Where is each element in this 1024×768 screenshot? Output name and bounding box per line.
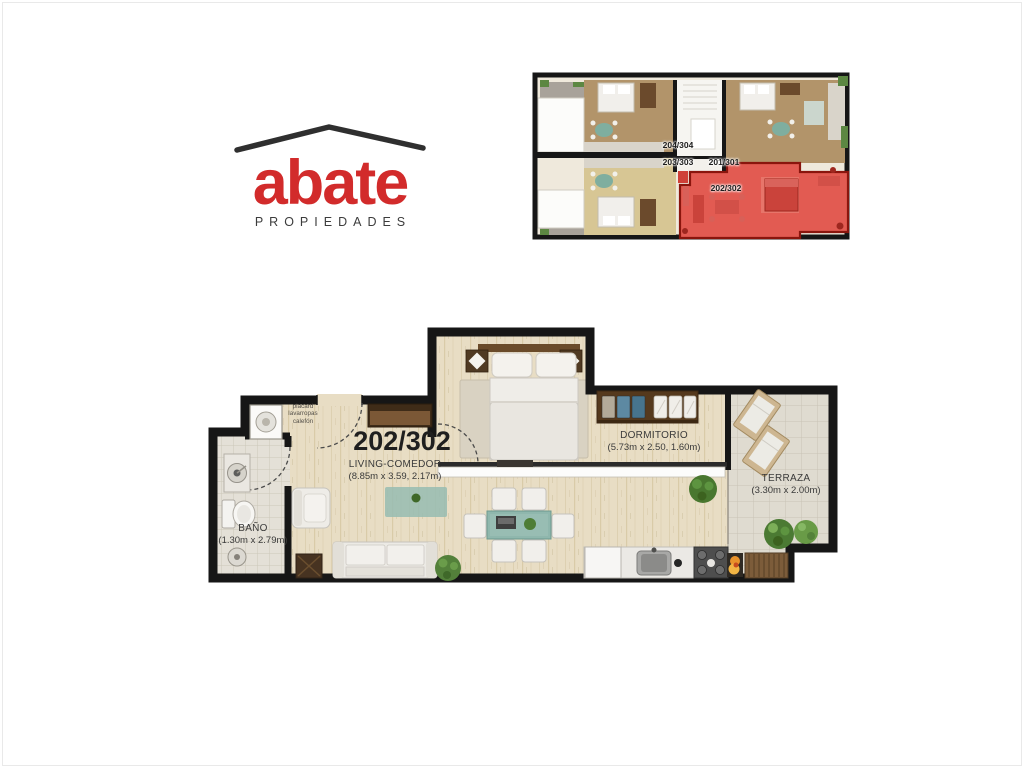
washer (250, 405, 282, 439)
overview-unit-label-202: 202/302 (702, 184, 750, 193)
highlighted-unit-region (680, 163, 848, 238)
room-label-living: LIVING-COMEDOR (8.85m x 3.59, 2.17m) (315, 458, 475, 483)
armchair (292, 488, 330, 528)
fridge (585, 547, 621, 578)
side-table (296, 554, 322, 578)
main-floorplan: 202/302 placard lavarropas calefón LIVIN… (210, 326, 840, 592)
overview-stairwell (676, 80, 724, 183)
brand-logo: abate PROPIEDADES (210, 116, 450, 251)
overview-unit-201 (724, 76, 848, 163)
overview-unit-label-203: 203/303 (654, 158, 702, 167)
plant-bedroom (689, 475, 717, 503)
plant-living (435, 555, 461, 581)
sofa (333, 542, 437, 578)
kitchen-sink (637, 548, 671, 576)
brand-tagline: PROPIEDADES (210, 215, 450, 229)
overview-plan: 204/304 203/303 201/301 202/302 (531, 71, 853, 245)
kitchen (584, 547, 728, 578)
bathroom-sink (228, 548, 246, 566)
wardrobe (597, 391, 698, 423)
brand-name: abate (210, 152, 450, 215)
floorplan-drawing (210, 326, 840, 592)
elevator-marker (678, 171, 688, 183)
hall-cabinet (368, 404, 432, 427)
room-label-terraza: TERRAZA (3.30m x 2.00m) (726, 472, 846, 497)
overview-unit-label-204: 204/304 (654, 141, 702, 150)
shower (224, 454, 250, 492)
utility-note: placard lavarropas calefón (281, 403, 325, 425)
rug-plant (412, 494, 421, 503)
bedroom-divider (438, 462, 727, 467)
stove (694, 547, 728, 578)
grill (727, 553, 788, 578)
unit-title: 202/302 (337, 427, 467, 455)
overview-unit-label-201: 201/301 (700, 158, 748, 167)
room-label-dormitorio: DORMITORIO (5.73m x 2.50, 1.60m) (574, 429, 734, 454)
room-label-bano: BAÑO (1.30m x 2.79m) (210, 522, 296, 547)
